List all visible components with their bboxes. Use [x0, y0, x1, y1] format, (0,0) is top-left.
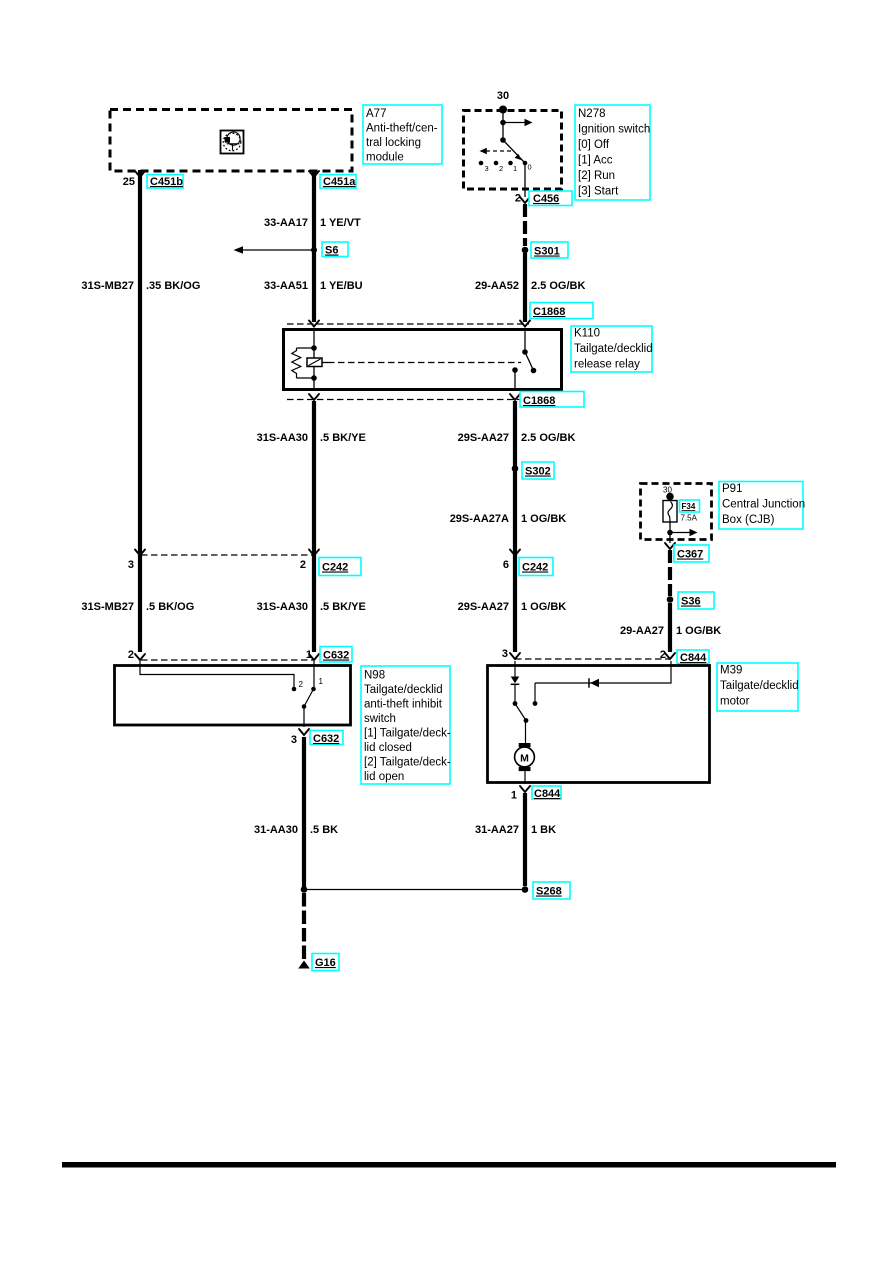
svg-text:6: 6 [503, 559, 509, 571]
svg-text:.35 BK/OG: .35 BK/OG [146, 280, 200, 292]
svg-text:1 YE/BU: 1 YE/BU [320, 280, 363, 292]
svg-text:S268: S268 [536, 886, 562, 898]
svg-text:.5 BK/YE: .5 BK/YE [320, 432, 366, 444]
svg-text:S301: S301 [534, 246, 560, 258]
svg-text:3: 3 [485, 164, 489, 173]
svg-text:[1] Tailgate/deck-: [1] Tailgate/deck- [364, 728, 451, 740]
svg-text:lid closed: lid closed [364, 742, 412, 754]
svg-text:M: M [520, 753, 529, 765]
svg-text:3: 3 [128, 559, 134, 571]
svg-text:G16: G16 [315, 957, 336, 969]
svg-text:.5 BK/YE: .5 BK/YE [320, 601, 366, 613]
svg-text:C632: C632 [313, 733, 339, 745]
svg-text:F34: F34 [682, 502, 696, 511]
svg-text:C451a: C451a [323, 176, 356, 188]
svg-text:C632: C632 [323, 650, 349, 662]
svg-text:31S-MB27: 31S-MB27 [81, 601, 134, 613]
svg-text:2.5 OG/BK: 2.5 OG/BK [531, 280, 585, 292]
svg-text:29S-AA27A: 29S-AA27A [450, 513, 509, 525]
svg-text:lid open: lid open [364, 771, 404, 783]
svg-text:Anti-theft/cen-: Anti-theft/cen- [366, 123, 438, 135]
svg-text:K110: K110 [574, 328, 600, 340]
svg-text:33-AA51: 33-AA51 [264, 280, 308, 292]
svg-text:C242: C242 [322, 562, 348, 574]
svg-text:S6: S6 [325, 245, 338, 257]
svg-text:3: 3 [502, 648, 508, 660]
svg-text:2: 2 [128, 649, 134, 661]
svg-text:[1] Acc: [1] Acc [578, 155, 613, 167]
svg-text:1: 1 [306, 649, 312, 661]
svg-text:[3] Start: [3] Start [578, 186, 619, 198]
svg-text:31-AA27: 31-AA27 [475, 824, 519, 836]
svg-text:1 OG/BK: 1 OG/BK [521, 601, 566, 613]
svg-text:31S-MB27: 31S-MB27 [81, 280, 134, 292]
svg-text:C1868: C1868 [523, 395, 555, 407]
svg-text:31S-AA30: 31S-AA30 [257, 601, 308, 613]
svg-text:Box (CJB): Box (CJB) [722, 514, 775, 526]
svg-text:A77: A77 [366, 108, 386, 120]
svg-text:1 YE/VT: 1 YE/VT [320, 217, 361, 229]
svg-text:2: 2 [499, 164, 503, 173]
svg-text:C456: C456 [533, 193, 559, 205]
svg-text:switch: switch [364, 713, 396, 725]
svg-text:2.5 OG/BK: 2.5 OG/BK [521, 432, 575, 444]
svg-text:S302: S302 [525, 466, 551, 478]
svg-text:30: 30 [497, 90, 509, 102]
svg-text:29-AA27: 29-AA27 [620, 625, 664, 637]
svg-text:1: 1 [511, 790, 517, 802]
svg-text:N98: N98 [364, 670, 385, 682]
svg-text:0: 0 [528, 163, 532, 172]
svg-text:25: 25 [123, 176, 135, 188]
svg-text:31-AA30: 31-AA30 [254, 824, 298, 836]
svg-text:Tailgate/decklid: Tailgate/decklid [720, 680, 799, 692]
svg-text:1: 1 [319, 677, 324, 686]
svg-text:anti-theft inhibit: anti-theft inhibit [364, 699, 443, 711]
svg-text:release relay: release relay [574, 359, 640, 371]
svg-text:2: 2 [299, 680, 304, 689]
svg-text:1 OG/BK: 1 OG/BK [676, 625, 721, 637]
svg-text:7.5A: 7.5A [681, 514, 698, 523]
svg-text:C242: C242 [522, 562, 548, 574]
svg-text:P91: P91 [722, 483, 742, 495]
svg-text:C451b: C451b [150, 176, 183, 188]
svg-text:C367: C367 [677, 549, 703, 561]
svg-text:29S-AA27: 29S-AA27 [458, 601, 509, 613]
svg-text:1 OG/BK: 1 OG/BK [521, 513, 566, 525]
svg-text:C844: C844 [680, 652, 707, 664]
svg-text:3: 3 [291, 734, 297, 746]
svg-text:Central Junction: Central Junction [722, 499, 805, 511]
svg-text:tral locking: tral locking [366, 137, 421, 149]
svg-text:S36: S36 [681, 596, 701, 608]
svg-text:[2] Tailgate/deck-: [2] Tailgate/deck- [364, 757, 451, 769]
svg-text:29-AA52: 29-AA52 [475, 280, 519, 292]
svg-text:.5 BK: .5 BK [310, 824, 338, 836]
svg-text:C1868: C1868 [533, 306, 565, 318]
svg-text:Ignition switch: Ignition switch [578, 124, 650, 136]
svg-text:31S-AA30: 31S-AA30 [257, 432, 308, 444]
svg-text:2: 2 [660, 649, 666, 661]
svg-text:C844: C844 [534, 788, 561, 800]
svg-text:1 BK: 1 BK [531, 824, 556, 836]
svg-text:[2] Run: [2] Run [578, 170, 615, 182]
svg-text:[0] Off: [0] Off [578, 139, 610, 151]
svg-text:N278: N278 [578, 108, 606, 120]
svg-text:motor: motor [720, 696, 750, 708]
svg-text:2: 2 [300, 559, 306, 571]
svg-text:module: module [366, 152, 404, 164]
svg-text:29S-AA27: 29S-AA27 [458, 432, 509, 444]
svg-text:1: 1 [513, 164, 517, 173]
svg-text:M39: M39 [720, 665, 742, 677]
svg-text:.5 BK/OG: .5 BK/OG [146, 601, 194, 613]
svg-text:Tailgate/decklid: Tailgate/decklid [574, 343, 653, 355]
svg-text:33-AA17: 33-AA17 [264, 217, 308, 229]
svg-text:Tailgate/decklid: Tailgate/decklid [364, 684, 443, 696]
